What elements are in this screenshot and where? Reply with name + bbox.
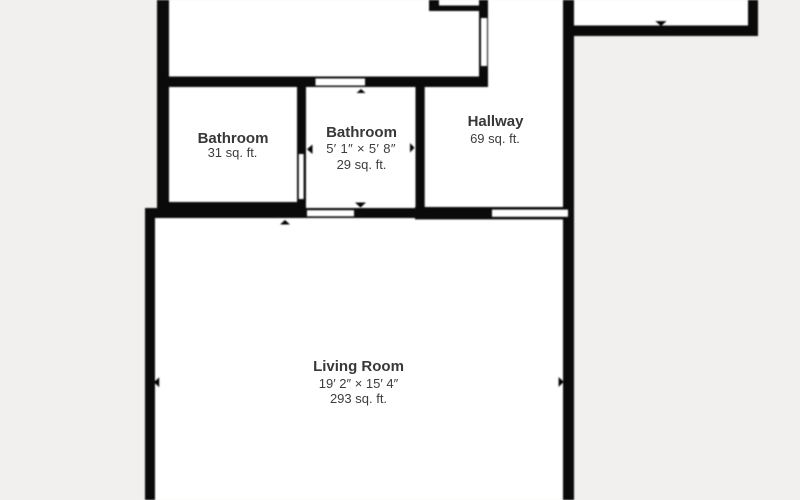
svg-text:29 sq. ft.: 29 sq. ft. — [337, 157, 387, 172]
svg-text:31 sq. ft.: 31 sq. ft. — [208, 145, 258, 160]
svg-text:19′ 2″ × 15′ 4″: 19′ 2″ × 15′ 4″ — [319, 376, 399, 391]
svg-text:Hallway: Hallway — [468, 113, 525, 130]
svg-text:Living Room: Living Room — [313, 358, 404, 375]
svg-text:69 sq. ft.: 69 sq. ft. — [470, 131, 520, 146]
svg-text:5′ 1″ × 5′ 8″: 5′ 1″ × 5′ 8″ — [326, 141, 396, 156]
svg-text:Bathroom: Bathroom — [326, 124, 397, 141]
svg-text:293 sq. ft.: 293 sq. ft. — [330, 391, 387, 406]
